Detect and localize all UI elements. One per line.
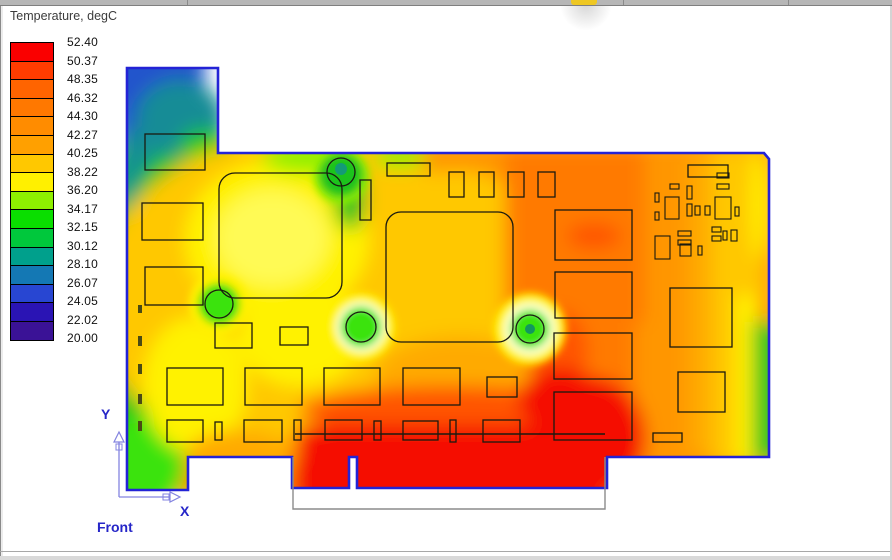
- y-axis-label: Y: [101, 406, 111, 422]
- legend-band: [11, 62, 53, 81]
- legend-tick-label: 30.12: [67, 236, 98, 255]
- legend-band: [11, 173, 53, 192]
- legend-band: [11, 229, 53, 248]
- contour-plot: Y X Front: [0, 0, 892, 560]
- legend-tick-label: 28.10: [67, 255, 98, 274]
- y-arrowhead-icon: [114, 432, 124, 442]
- frame-tick: [623, 0, 624, 5]
- legend-band: [11, 99, 53, 118]
- legend-band: [11, 266, 53, 285]
- legend-band: [11, 192, 53, 211]
- legend-band: [11, 322, 53, 340]
- legend-band: [11, 303, 53, 322]
- legend-tick-label: 50.37: [67, 51, 98, 70]
- legend-tick-label: 46.32: [67, 88, 98, 107]
- legend-band: [11, 136, 53, 155]
- frame-tick: [187, 0, 188, 5]
- legend-title: Temperature, degC: [10, 9, 117, 23]
- thermal-field: [90, 30, 783, 520]
- legend-tick-label: 34.17: [67, 199, 98, 218]
- frame-tick: [788, 0, 789, 5]
- legend-band: [11, 80, 53, 99]
- legend-tick-label: 22.02: [67, 310, 98, 329]
- legend-color-bar: [10, 42, 54, 341]
- legend-tick-label: 44.30: [67, 107, 98, 126]
- x-axis-label: X: [180, 503, 190, 519]
- legend-tick-label: 40.25: [67, 144, 98, 163]
- legend-tick-label: 52.40: [67, 33, 98, 52]
- window-bottom-strip: [0, 556, 892, 560]
- window-top-border: [0, 0, 892, 6]
- legend-band: [11, 248, 53, 267]
- window-left-border-inner: [1, 0, 3, 560]
- x-arrowhead-icon: [170, 492, 180, 502]
- legend-tick-label: 20.00: [67, 329, 98, 348]
- legend-tick-label: 36.20: [67, 181, 98, 200]
- window-tab-artifact: [571, 0, 597, 5]
- legend-band: [11, 43, 53, 62]
- mounting-hole-core: [335, 163, 347, 175]
- legend-band: [11, 285, 53, 304]
- legend-tick-label: 42.27: [67, 125, 98, 144]
- legend-band: [11, 117, 53, 136]
- window-bottom-border: [0, 551, 892, 552]
- thermal-simulation-view: Temperature, degC 52.4050.3748.3546.3244…: [0, 0, 892, 560]
- legend-band: [11, 155, 53, 174]
- legend-tick-label: 26.07: [67, 273, 98, 292]
- legend-labels: 52.4050.3748.3546.3244.3042.2740.2538.22…: [67, 33, 98, 348]
- mounting-hole-core: [525, 324, 535, 334]
- legend-tick-label: 38.22: [67, 162, 98, 181]
- legend-tick-label: 48.35: [67, 70, 98, 89]
- view-orientation-label: Front: [97, 519, 133, 535]
- legend-tick-label: 32.15: [67, 218, 98, 237]
- legend-band: [11, 210, 53, 229]
- legend-tick-label: 24.05: [67, 292, 98, 311]
